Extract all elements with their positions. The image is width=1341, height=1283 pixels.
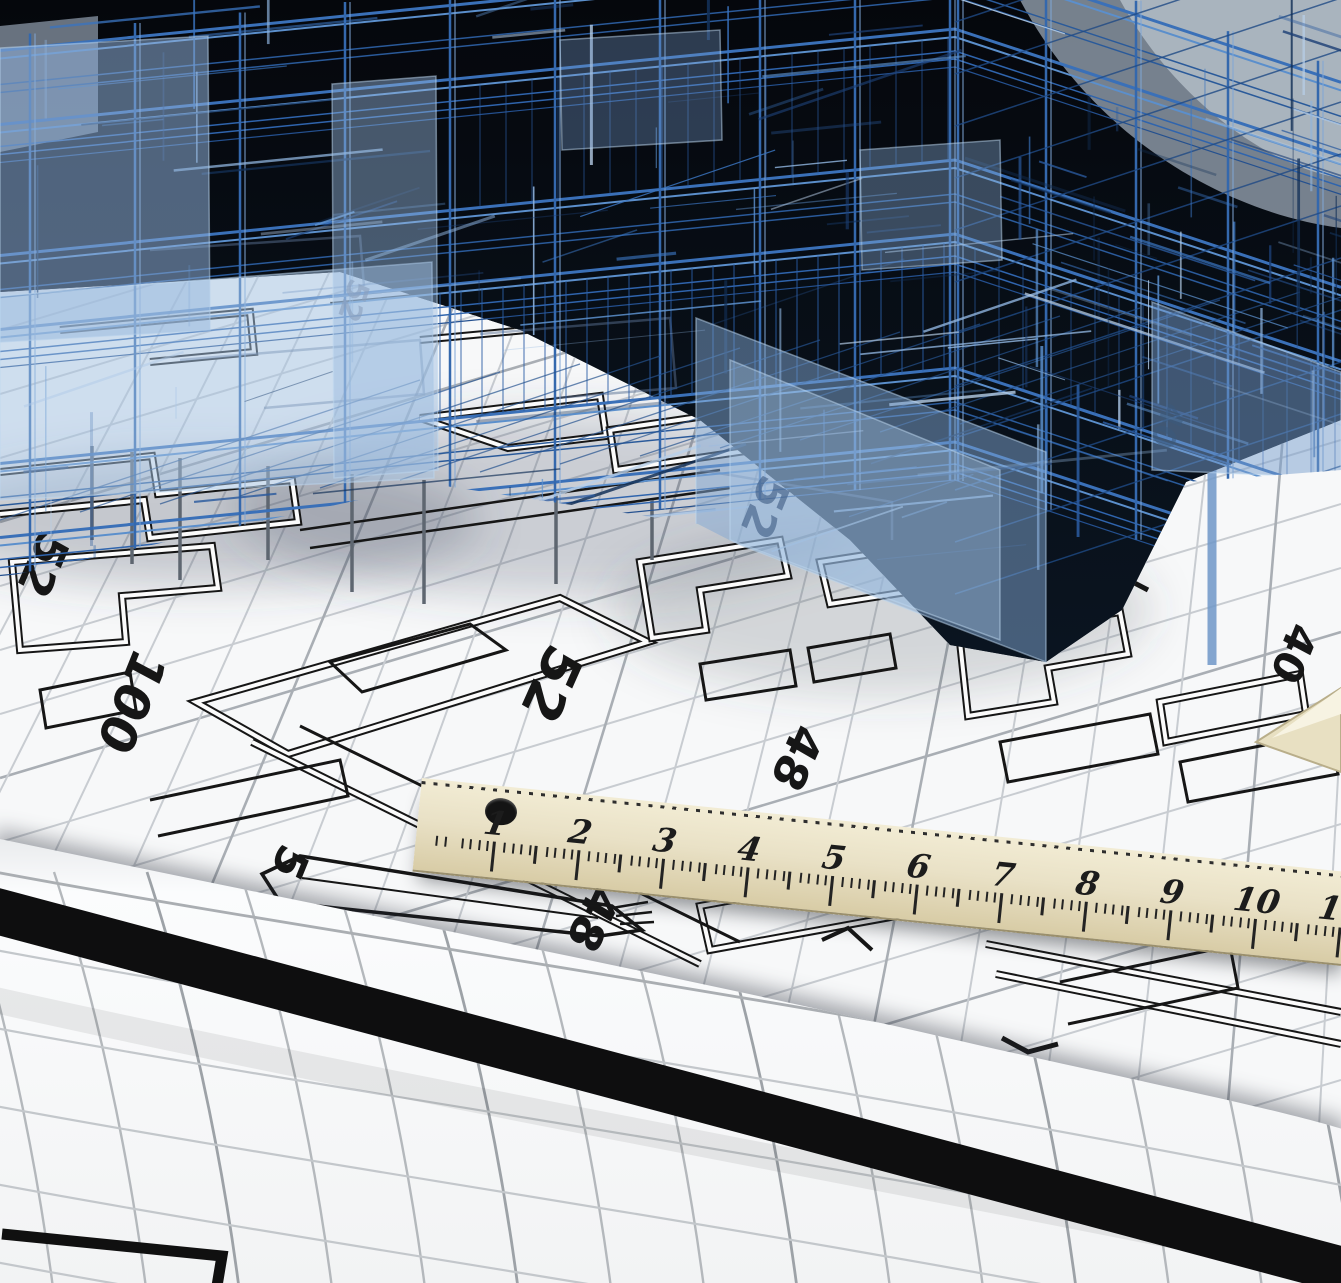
architectural-render-scene: 52100524840548 524052 1234567891011	[0, 0, 1341, 1283]
rolled-blueprint-sheet	[0, 0, 1341, 1283]
